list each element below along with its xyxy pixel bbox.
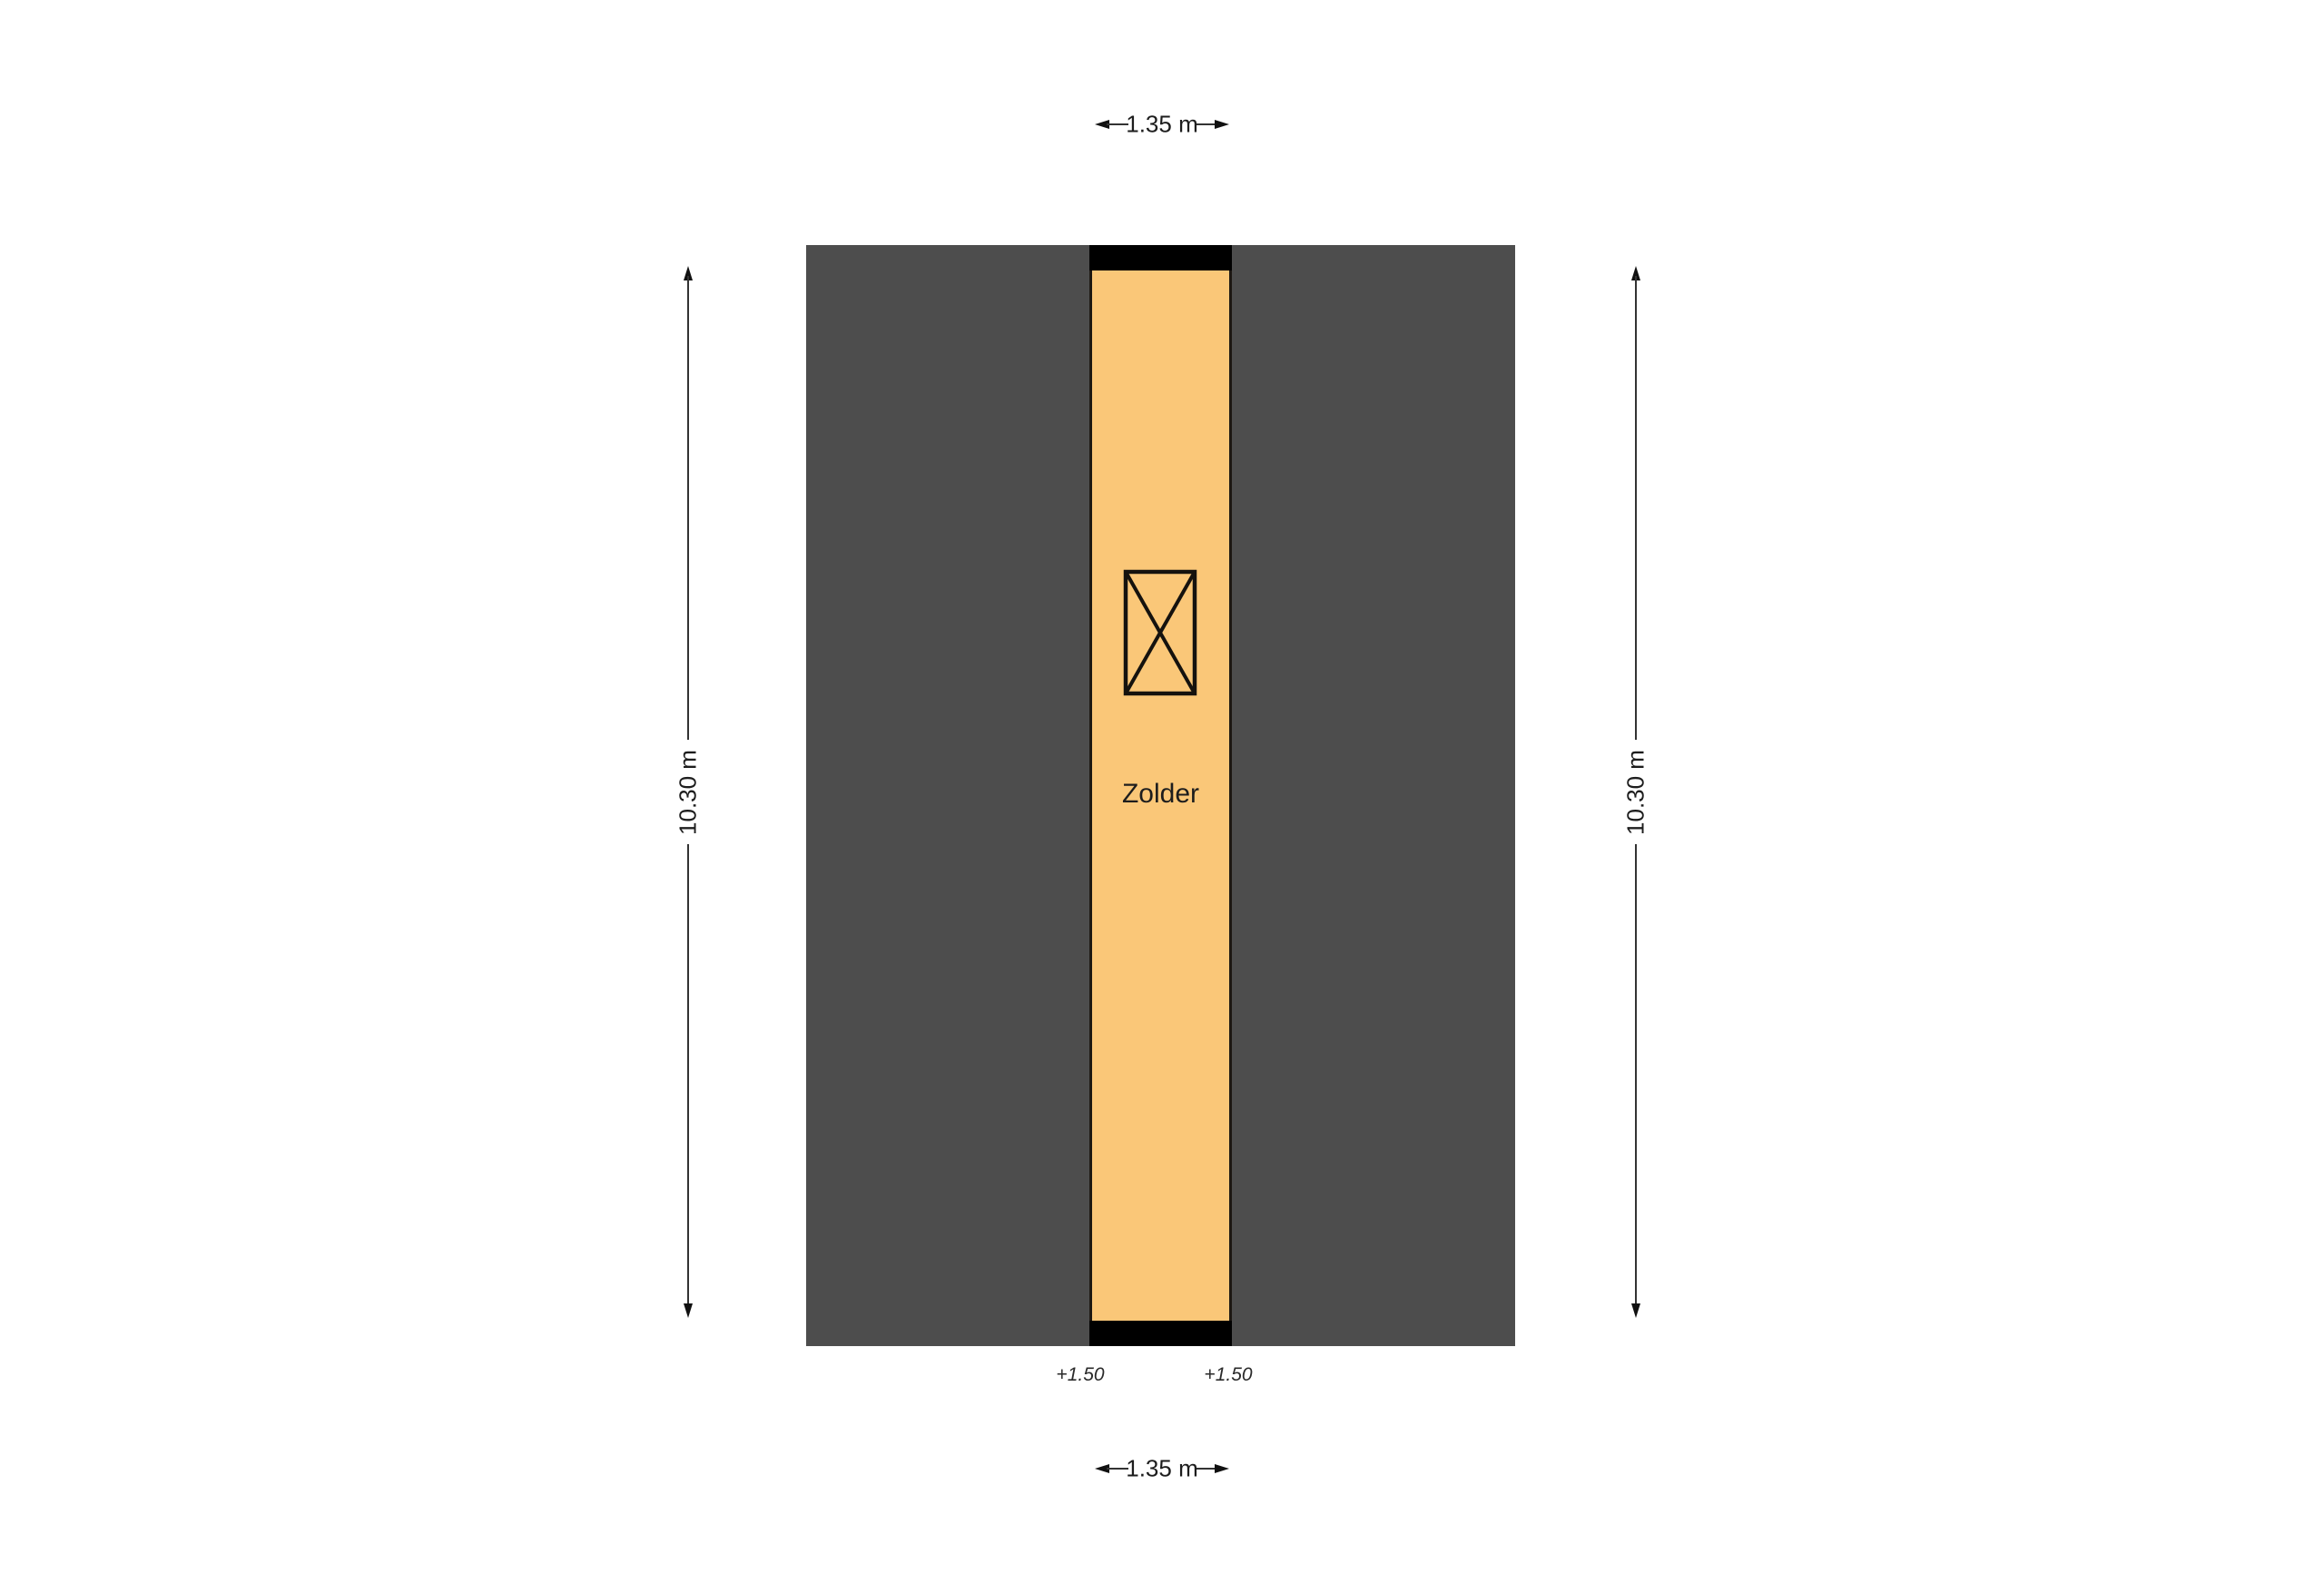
- dimension-height-right: 10.30 m: [1623, 265, 1649, 1319]
- crossed-rectangle-icon: [1121, 567, 1199, 698]
- dimension-label: 1.35 m: [1094, 1455, 1230, 1483]
- room-label: Zolder: [1089, 781, 1232, 808]
- dimension-label: 1.35 m: [1094, 111, 1230, 139]
- dimension-height-left: 10.30 m: [675, 265, 701, 1319]
- floorplan-canvas: Zolder 1.35 m 1.35 m 10.30 m: [0, 0, 2324, 1593]
- wall-segment-bottom: [1089, 1321, 1232, 1346]
- dimension-width-bottom: 1.35 m: [1094, 1460, 1230, 1478]
- wall-segment-top: [1089, 245, 1232, 270]
- dimension-label: 10.30 m: [1622, 750, 1650, 835]
- dimension-label: 10.30 m: [675, 750, 703, 835]
- level-marker-right: +1.50: [1204, 1364, 1252, 1386]
- level-marker-left: +1.50: [1056, 1364, 1104, 1386]
- dimension-width-top: 1.35 m: [1094, 115, 1230, 133]
